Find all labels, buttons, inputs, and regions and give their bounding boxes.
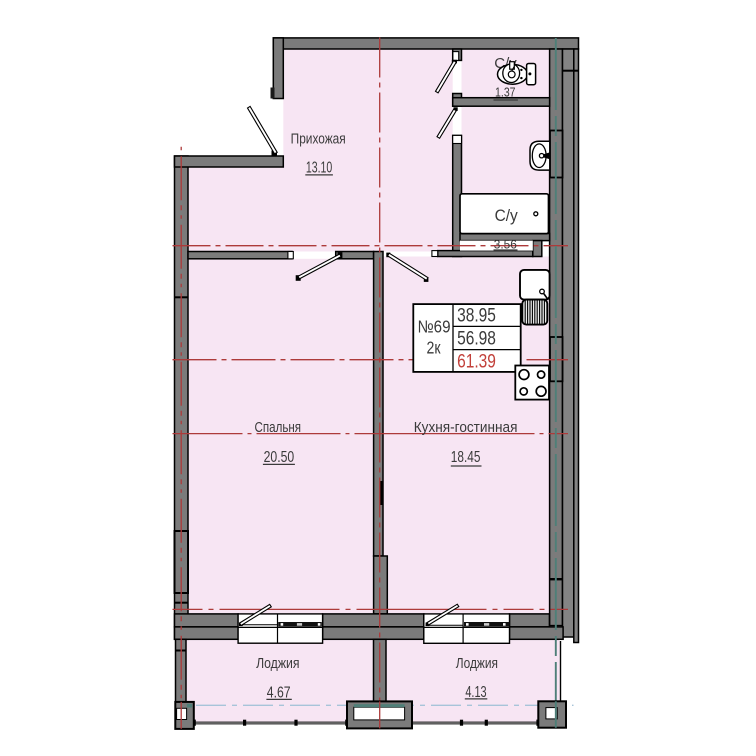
svg-text:Лоджия: Лоджия — [456, 655, 498, 672]
svg-text:20.50: 20.50 — [264, 449, 295, 466]
svg-text:4.67: 4.67 — [267, 684, 291, 701]
svg-text:Прихожая: Прихожая — [291, 131, 346, 148]
svg-text:18.45: 18.45 — [451, 449, 481, 466]
svg-text:56.98: 56.98 — [457, 328, 496, 350]
svg-text:1.37: 1.37 — [495, 86, 516, 100]
svg-text:13.10: 13.10 — [306, 159, 332, 176]
svg-text:Спальня: Спальня — [255, 419, 302, 436]
svg-text:38.95: 38.95 — [457, 305, 496, 327]
svg-text:61.39: 61.39 — [457, 351, 496, 373]
svg-text:3.56: 3.56 — [494, 237, 518, 251]
svg-text:Лоджия: Лоджия — [256, 655, 299, 672]
svg-text:2к: 2к — [427, 338, 441, 358]
svg-text:№69: №69 — [417, 317, 450, 337]
svg-text:С/у: С/у — [495, 206, 519, 225]
svg-text:Кухня-гостинная: Кухня-гостинная — [414, 419, 518, 436]
